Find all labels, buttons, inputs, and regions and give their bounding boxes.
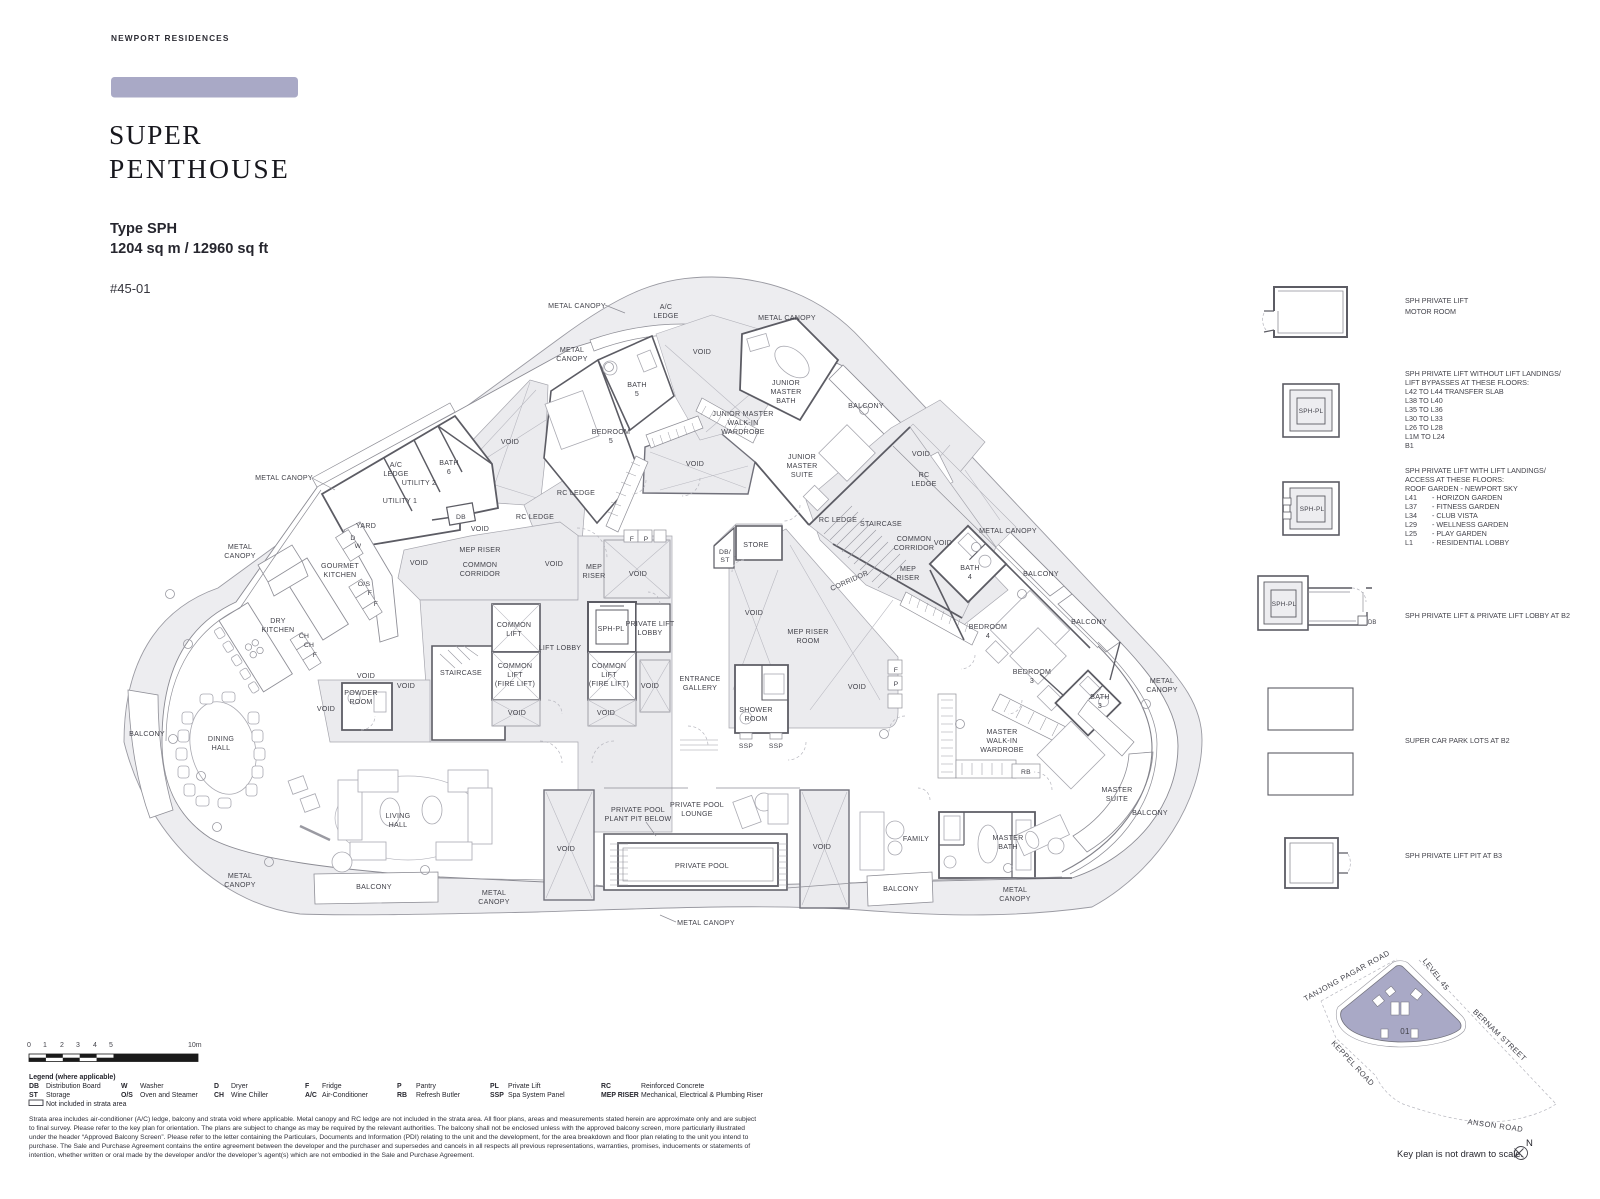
svg-text:SPH PRIVATE LIFT WITHOUT LIFT: SPH PRIVATE LIFT WITHOUT LIFT LANDINGS/ [1405, 369, 1561, 378]
svg-text:BATH: BATH [776, 397, 795, 405]
svg-text:A/C: A/C [660, 303, 673, 311]
svg-text:WARDROBE: WARDROBE [721, 428, 765, 436]
svg-text:JUNIOR: JUNIOR [772, 379, 800, 387]
svg-text:to final survey. Please refer: to final survey. Please refer to the key… [29, 1125, 745, 1132]
svg-text:VOID: VOID [545, 560, 563, 568]
svg-text:COMMON: COMMON [497, 621, 532, 629]
svg-text:2: 2 [60, 1042, 64, 1049]
svg-text:SPH-PL: SPH-PL [1299, 408, 1324, 415]
svg-text:SUPER CAR PARK LOTS AT B2: SUPER CAR PARK LOTS AT B2 [1405, 736, 1510, 745]
svg-text:purchase. The Sale and Purcha: purchase. The Sale and Purchase Agreemen… [29, 1143, 750, 1150]
svg-text:BEDROOM: BEDROOM [592, 428, 630, 436]
svg-text:ROOM: ROOM [796, 637, 819, 645]
svg-text:DB/: DB/ [719, 549, 731, 556]
svg-text:STAIRCASE: STAIRCASE [440, 669, 482, 677]
svg-text:ST: ST [29, 1092, 39, 1099]
svg-text:- HORIZON GARDEN: - HORIZON GARDEN [1432, 493, 1502, 502]
svg-text:(FIRE LIFT): (FIRE LIFT) [589, 680, 629, 688]
svg-text:ST: ST [720, 557, 729, 564]
svg-text:PRIVATE POOL: PRIVATE POOL [611, 806, 665, 814]
svg-text:LIFT: LIFT [507, 671, 523, 679]
svg-text:#45-01: #45-01 [110, 281, 150, 296]
svg-text:BALCONY: BALCONY [1023, 570, 1059, 578]
svg-text:F: F [313, 652, 317, 659]
svg-text:Type SPH: Type SPH [110, 221, 177, 237]
svg-text:VOID: VOID [410, 559, 428, 567]
svg-text:LIFT LOBBY: LIFT LOBBY [539, 644, 582, 652]
svg-text:BATH: BATH [627, 381, 646, 389]
svg-text:METAL: METAL [560, 346, 584, 354]
svg-text:Washer: Washer [140, 1083, 164, 1090]
svg-text:- RESIDENTIAL LOBBY: - RESIDENTIAL LOBBY [1432, 538, 1509, 547]
svg-text:PRIVATE LIFT: PRIVATE LIFT [626, 620, 675, 628]
svg-text:WALK-IN: WALK-IN [986, 737, 1017, 745]
svg-text:CANOPY: CANOPY [556, 355, 587, 363]
svg-text:CANOPY: CANOPY [478, 898, 509, 906]
svg-text:METAL: METAL [228, 872, 252, 880]
svg-text:WARDROBE: WARDROBE [980, 746, 1024, 754]
svg-text:L26 TO L28: L26 TO L28 [1405, 423, 1443, 432]
svg-text:A/C: A/C [390, 461, 403, 469]
svg-text:CANOPY: CANOPY [1146, 686, 1177, 694]
svg-text:O/S: O/S [358, 581, 371, 588]
svg-text:Wine Chiller: Wine Chiller [231, 1092, 269, 1099]
svg-text:DB: DB [29, 1083, 39, 1090]
svg-text:N: N [1526, 1138, 1533, 1149]
svg-text:LIVING: LIVING [386, 812, 411, 820]
svg-text:MEP: MEP [586, 563, 602, 571]
svg-text:MASTER: MASTER [770, 388, 801, 396]
svg-text:YARD: YARD [356, 522, 376, 530]
svg-text:METAL: METAL [1150, 677, 1174, 685]
svg-text:METAL: METAL [482, 889, 506, 897]
svg-text:UTILITY 2: UTILITY 2 [402, 479, 436, 487]
svg-text:FAMILY: FAMILY [903, 835, 929, 843]
svg-text:ACCESS AT THESE FLOORS:: ACCESS AT THESE FLOORS: [1405, 475, 1504, 484]
svg-text:MASTER: MASTER [786, 462, 817, 470]
svg-text:LEDGE: LEDGE [383, 470, 408, 478]
svg-text:CH: CH [299, 633, 309, 640]
svg-text:CH: CH [214, 1092, 224, 1099]
svg-text:L38 TO L40: L38 TO L40 [1405, 396, 1443, 405]
svg-text:LIFT: LIFT [506, 630, 522, 638]
svg-text:BEDROOM: BEDROOM [1013, 668, 1051, 676]
svg-text:GOURMET: GOURMET [321, 562, 359, 570]
svg-text:VOID: VOID [471, 525, 489, 533]
svg-text:MEP: MEP [900, 565, 916, 573]
svg-text:L1M TO L24: L1M TO L24 [1405, 432, 1445, 441]
svg-text:F: F [305, 1083, 309, 1090]
svg-text:METAL CANOPY: METAL CANOPY [255, 474, 313, 482]
svg-text:SPH PRIVATE LIFT PIT AT B3: SPH PRIVATE LIFT PIT AT B3 [1405, 851, 1502, 860]
svg-text:VOID: VOID [912, 450, 930, 458]
svg-text:RB: RB [1021, 769, 1031, 776]
svg-text:VOID: VOID [557, 845, 575, 853]
svg-text:METAL CANOPY: METAL CANOPY [758, 314, 816, 322]
svg-text:Reinforced Concrete: Reinforced Concrete [641, 1083, 704, 1090]
svg-text:NEWPORT RESIDENCES: NEWPORT RESIDENCES [111, 33, 229, 43]
svg-text:RC: RC [601, 1083, 611, 1090]
svg-text:RB: RB [397, 1092, 407, 1099]
svg-text:LOBBY: LOBBY [638, 629, 663, 637]
svg-text:BALCONY: BALCONY [1132, 809, 1168, 817]
svg-text:Oven and Steamer: Oven and Steamer [140, 1092, 199, 1099]
svg-text:SHOWER: SHOWER [739, 706, 772, 714]
svg-text:SPH PRIVATE LIFT: SPH PRIVATE LIFT [1405, 296, 1469, 305]
svg-text:JUNIOR: JUNIOR [788, 453, 816, 461]
svg-text:VOID: VOID [501, 438, 519, 446]
svg-text:CORRIDOR: CORRIDOR [460, 570, 501, 578]
svg-text:MEP RISER: MEP RISER [787, 628, 828, 636]
svg-text:BATH: BATH [960, 564, 979, 572]
svg-text:VOID: VOID [629, 570, 647, 578]
svg-text:3: 3 [1030, 677, 1034, 685]
svg-text:DRY: DRY [270, 617, 286, 625]
svg-text:P: P [644, 536, 649, 543]
svg-text:BATH: BATH [439, 459, 458, 467]
svg-text:KEPPEL ROAD: KEPPEL ROAD [1329, 1039, 1376, 1088]
svg-text:SPH PRIVATE LIFT WITH LIFT LAN: SPH PRIVATE LIFT WITH LIFT LANDINGS/ [1405, 466, 1546, 475]
svg-text:RC LEDGE: RC LEDGE [819, 516, 857, 524]
svg-text:Refresh Butler: Refresh Butler [416, 1092, 461, 1099]
svg-text:ROOF GARDEN - NEWPORT SKY: ROOF GARDEN - NEWPORT SKY [1405, 484, 1518, 493]
svg-text:SPH-PL: SPH-PL [598, 626, 625, 633]
svg-text:PL: PL [490, 1083, 499, 1090]
svg-text:COMMON: COMMON [592, 662, 627, 670]
svg-text:METAL CANOPY: METAL CANOPY [979, 527, 1037, 535]
svg-text:P: P [894, 681, 899, 688]
svg-text:MEP RISER: MEP RISER [459, 546, 500, 554]
svg-text:DINING: DINING [208, 735, 234, 743]
svg-text:F: F [894, 667, 898, 674]
svg-text:WALK-IN: WALK-IN [727, 419, 758, 427]
svg-text:VOID: VOID [693, 348, 711, 356]
svg-text:W: W [121, 1083, 128, 1090]
svg-text:RC LEDGE: RC LEDGE [516, 513, 554, 521]
svg-text:COMMON: COMMON [463, 561, 498, 569]
svg-text:O/S: O/S [121, 1092, 133, 1099]
svg-text:SSP: SSP [769, 743, 784, 750]
svg-text:L1: L1 [1405, 538, 1413, 547]
svg-text:KITCHEN: KITCHEN [262, 626, 295, 634]
svg-text:L35 TO L36: L35 TO L36 [1405, 405, 1443, 414]
svg-text:intention, whether written or: intention, whether written or oral made … [29, 1152, 474, 1159]
svg-text:METAL CANOPY: METAL CANOPY [548, 302, 606, 310]
svg-text:PENTHOUSE: PENTHOUSE [109, 153, 290, 184]
svg-text:SUITE: SUITE [791, 471, 813, 479]
svg-text:- CLUB VISTA: - CLUB VISTA [1432, 511, 1478, 520]
svg-text:DB: DB [1368, 620, 1376, 626]
svg-text:L34: L34 [1405, 511, 1417, 520]
svg-text:P: P [397, 1083, 402, 1090]
svg-text:VOID: VOID [686, 460, 704, 468]
svg-text:RC: RC [919, 471, 930, 479]
svg-text:RISER: RISER [897, 574, 920, 582]
svg-text:RISER: RISER [583, 572, 606, 580]
svg-text:SUITE: SUITE [1106, 795, 1128, 803]
svg-text:ROOM: ROOM [349, 698, 372, 706]
svg-text:L37: L37 [1405, 502, 1417, 511]
svg-text:SPH-PL: SPH-PL [1300, 506, 1325, 513]
svg-text:METAL: METAL [228, 543, 252, 551]
svg-text:MEP RISER: MEP RISER [601, 1092, 639, 1099]
svg-text:under the header “Approved Bal: under the header “Approved Balcony Scree… [29, 1134, 749, 1141]
svg-text:COMMON: COMMON [897, 535, 932, 543]
svg-text:Dryer: Dryer [231, 1083, 249, 1090]
svg-text:Storage: Storage [46, 1092, 70, 1099]
svg-text:Fridge: Fridge [322, 1083, 342, 1090]
svg-text:DB: DB [456, 514, 466, 521]
svg-text:BATH: BATH [1090, 693, 1109, 701]
svg-text:CH: CH [304, 642, 314, 649]
svg-text:CORRIDOR: CORRIDOR [894, 544, 935, 552]
svg-text:Spa System Panel: Spa System Panel [508, 1092, 565, 1099]
svg-text:6: 6 [447, 468, 451, 476]
svg-text:5: 5 [109, 1042, 113, 1049]
svg-text:(FIRE LIFT): (FIRE LIFT) [495, 680, 535, 688]
svg-text:CANOPY: CANOPY [999, 895, 1030, 903]
svg-text:STORE: STORE [743, 541, 769, 549]
svg-text:HALL: HALL [389, 821, 408, 829]
svg-text:Strata area includes air-condi: Strata area includes air-conditioner (A/… [29, 1116, 756, 1123]
svg-text:VOID: VOID [641, 682, 659, 690]
svg-text:PLANT PIT BELOW: PLANT PIT BELOW [605, 815, 672, 823]
svg-text:5: 5 [635, 390, 639, 398]
svg-text:F: F [630, 536, 634, 543]
svg-text:1: 1 [43, 1042, 47, 1049]
svg-text:4: 4 [968, 573, 972, 581]
svg-text:CANOPY: CANOPY [224, 552, 255, 560]
svg-text:CANOPY: CANOPY [224, 881, 255, 889]
svg-text:Air-Conditioner: Air-Conditioner [322, 1092, 369, 1099]
svg-text:0: 0 [27, 1042, 31, 1049]
svg-text:VOID: VOID [813, 843, 831, 851]
svg-text:01: 01 [1400, 1027, 1410, 1036]
svg-text:VOID: VOID [745, 609, 763, 617]
svg-text:ROOM: ROOM [744, 715, 767, 723]
svg-text:UTILITY 1: UTILITY 1 [383, 497, 417, 505]
svg-text:Private Lift: Private Lift [508, 1083, 541, 1090]
svg-text:VOID: VOID [317, 705, 335, 713]
svg-text:LIFT: LIFT [601, 671, 617, 679]
svg-text:HALL: HALL [212, 744, 231, 752]
svg-text:MASTER: MASTER [986, 728, 1017, 736]
svg-text:LEDGE: LEDGE [653, 312, 678, 320]
svg-text:- FITNESS GARDEN: - FITNESS GARDEN [1432, 502, 1500, 511]
svg-text:VOID: VOID [597, 709, 615, 717]
svg-text:3: 3 [1098, 702, 1102, 710]
svg-text:LIFT BYPASSES AT THESE FLOORS:: LIFT BYPASSES AT THESE FLOORS: [1405, 378, 1529, 387]
svg-text:L29: L29 [1405, 520, 1417, 529]
svg-text:LOUNGE: LOUNGE [681, 810, 712, 818]
svg-text:4: 4 [93, 1042, 97, 1049]
svg-text:MASTER: MASTER [992, 834, 1023, 842]
svg-text:PRIVATE POOL: PRIVATE POOL [675, 862, 729, 870]
svg-text:F: F [374, 601, 378, 608]
svg-text:Pantry: Pantry [416, 1083, 436, 1090]
svg-text:MOTOR ROOM: MOTOR ROOM [1405, 307, 1456, 316]
svg-text:Legend (where applicable): Legend (where applicable) [29, 1074, 116, 1081]
svg-text:BALCONY: BALCONY [883, 885, 919, 893]
svg-text:COMMON: COMMON [498, 662, 533, 670]
svg-text:1204 sq m / 12960 sq ft: 1204 sq m / 12960 sq ft [110, 241, 268, 257]
svg-text:B1: B1 [1405, 441, 1414, 450]
svg-text:L25: L25 [1405, 529, 1417, 538]
svg-text:10m: 10m [188, 1042, 202, 1049]
svg-text:VOID: VOID [397, 682, 415, 690]
svg-text:JUNIOR MASTER: JUNIOR MASTER [712, 410, 773, 418]
svg-text:3: 3 [76, 1042, 80, 1049]
svg-text:BEDROOM: BEDROOM [969, 623, 1007, 631]
svg-text:METAL: METAL [1003, 886, 1027, 894]
svg-text:BALCONY: BALCONY [356, 883, 392, 891]
svg-text:L41: L41 [1405, 493, 1417, 502]
svg-text:LEDGE: LEDGE [911, 480, 936, 488]
svg-text:A/C: A/C [305, 1092, 317, 1099]
svg-text:SUPER: SUPER [109, 119, 202, 150]
svg-text:SSP: SSP [490, 1092, 504, 1099]
svg-text:LEVEL 45: LEVEL 45 [1421, 957, 1451, 992]
svg-text:BALCONY: BALCONY [129, 730, 165, 738]
svg-text:D: D [350, 535, 355, 542]
svg-text:W: W [355, 543, 362, 550]
svg-text:GALLERY: GALLERY [683, 684, 717, 692]
svg-text:Key plan is not drawn to scale: Key plan is not drawn to scale. [1397, 1149, 1523, 1159]
svg-text:L30 TO L33: L30 TO L33 [1405, 414, 1443, 423]
svg-text:F: F [368, 590, 372, 597]
svg-text:RC LEDGE: RC LEDGE [557, 489, 595, 497]
svg-text:Distribution Board: Distribution Board [46, 1083, 101, 1090]
svg-text:STAIRCASE: STAIRCASE [860, 520, 902, 528]
svg-text:BALCONY: BALCONY [848, 402, 884, 410]
svg-text:L42 TO L44 TRANSFER SLAB: L42 TO L44 TRANSFER SLAB [1405, 387, 1504, 396]
svg-text:5: 5 [609, 437, 613, 445]
svg-text:MASTER: MASTER [1101, 786, 1132, 794]
svg-text:VOID: VOID [934, 539, 952, 547]
svg-text:VOID: VOID [508, 709, 526, 717]
svg-text:BERNAM STREET: BERNAM STREET [1471, 1007, 1528, 1063]
svg-text:- PLAY GARDEN: - PLAY GARDEN [1432, 529, 1487, 538]
svg-text:POWDER: POWDER [344, 689, 377, 697]
svg-text:ENTRANCE: ENTRANCE [679, 675, 720, 683]
svg-text:Mechanical, Electrical & Plumb: Mechanical, Electrical & Plumbing Riser [641, 1092, 763, 1099]
svg-text:VOID: VOID [357, 672, 375, 680]
svg-text:PRIVATE POOL: PRIVATE POOL [670, 801, 724, 809]
svg-text:BALCONY: BALCONY [1071, 618, 1107, 626]
svg-text:Not included in strata area: Not included in strata area [46, 1101, 127, 1108]
svg-text:- WELLNESS GARDEN: - WELLNESS GARDEN [1432, 520, 1508, 529]
svg-text:KITCHEN: KITCHEN [324, 571, 357, 579]
svg-text:VOID: VOID [848, 683, 866, 691]
svg-text:SPH-PL: SPH-PL [1272, 601, 1297, 608]
svg-text:SSP: SSP [739, 743, 754, 750]
svg-text:BATH: BATH [998, 843, 1017, 851]
svg-text:SPH PRIVATE LIFT & PRIVATE LIF: SPH PRIVATE LIFT & PRIVATE LIFT LOBBY AT… [1405, 611, 1570, 620]
svg-text:D: D [214, 1083, 219, 1090]
svg-text:4: 4 [986, 632, 990, 640]
svg-text:METAL CANOPY: METAL CANOPY [677, 919, 735, 927]
